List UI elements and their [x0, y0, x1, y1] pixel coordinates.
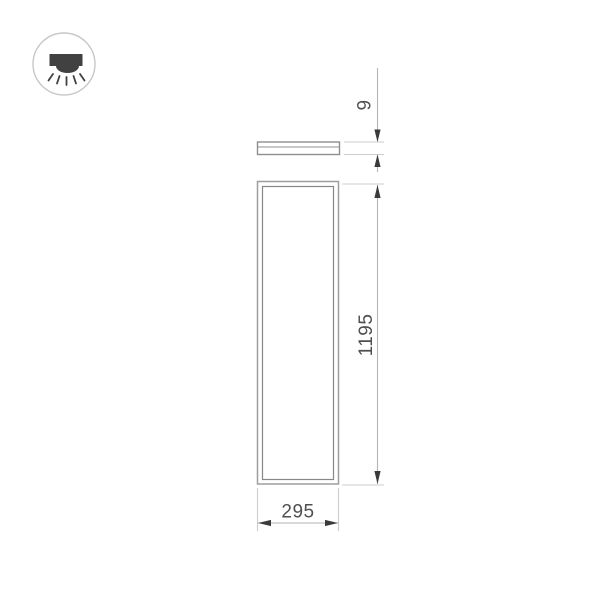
technical-drawing-page: 9 1195 295: [0, 0, 600, 600]
dimension-thickness: 9: [355, 68, 381, 172]
arrow-up-icon: [374, 185, 380, 198]
side-view-outline: [258, 142, 340, 155]
dimension-label-height: 1195: [356, 314, 377, 357]
arrow-up-icon: [374, 155, 380, 168]
dimension-label-width: 295: [281, 502, 314, 523]
arrow-right-icon: [325, 520, 338, 526]
panel-side-profile-view: [258, 142, 340, 155]
dimension-label-thickness: 9: [355, 99, 376, 110]
arrow-left-icon: [258, 520, 271, 526]
icon-lamp-housing: [50, 54, 83, 66]
front-view-inner-frame: [263, 187, 334, 480]
ceiling-light-icon: [33, 33, 95, 95]
panel-front-view: [258, 182, 339, 485]
dimension-height: 1195: [356, 185, 381, 484]
panel-dimension-drawing: 9 1195 295: [0, 0, 600, 600]
arrow-down-icon: [374, 130, 380, 143]
arrow-down-icon: [374, 471, 380, 484]
dimension-width: 295: [258, 502, 338, 527]
